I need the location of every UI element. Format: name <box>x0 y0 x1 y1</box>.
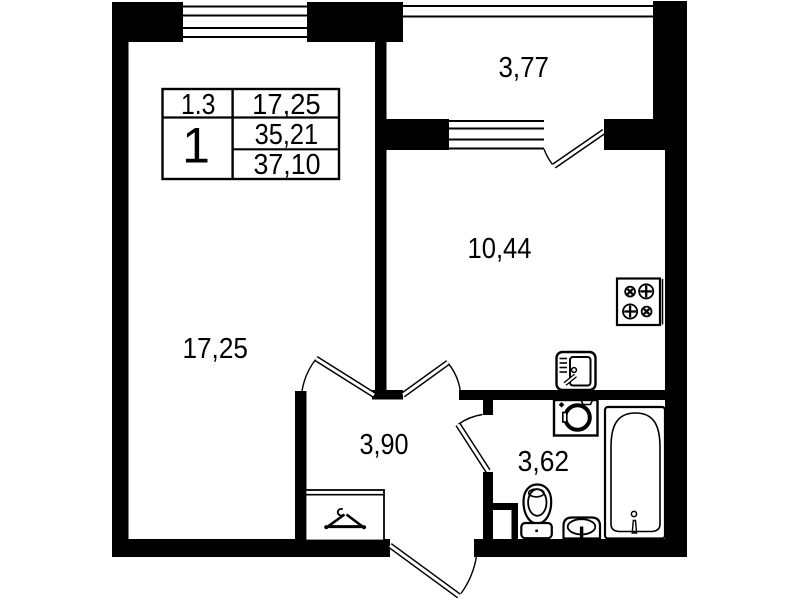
svg-text:3,90: 3,90 <box>360 429 409 461</box>
svg-text:17,25: 17,25 <box>252 89 321 121</box>
svg-text:3,62: 3,62 <box>518 446 570 478</box>
svg-text:10,44: 10,44 <box>468 233 532 265</box>
svg-text:3,77: 3,77 <box>498 52 549 84</box>
svg-text:37,10: 37,10 <box>254 149 321 181</box>
svg-text:35,21: 35,21 <box>255 119 319 151</box>
svg-text:17,25: 17,25 <box>182 333 248 365</box>
svg-text:1.3: 1.3 <box>181 89 216 121</box>
svg-text:1: 1 <box>182 118 210 174</box>
